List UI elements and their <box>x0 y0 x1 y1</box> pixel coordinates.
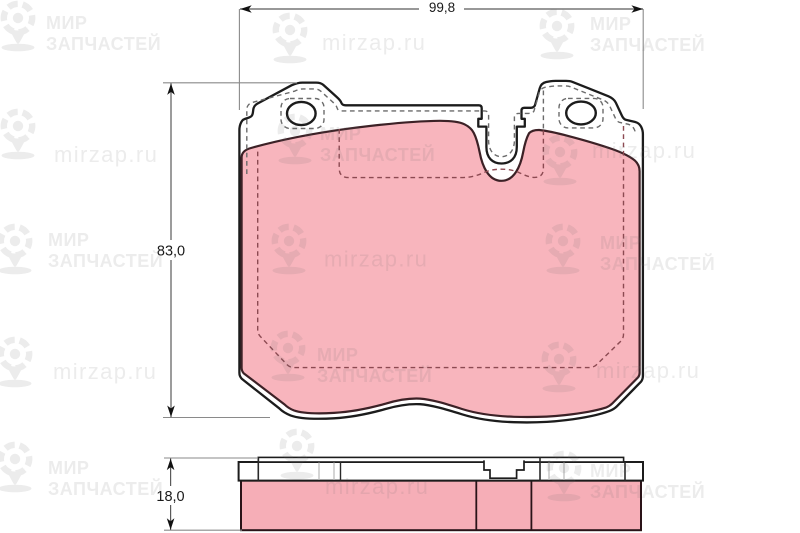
svg-text:99,8: 99,8 <box>429 0 455 15</box>
